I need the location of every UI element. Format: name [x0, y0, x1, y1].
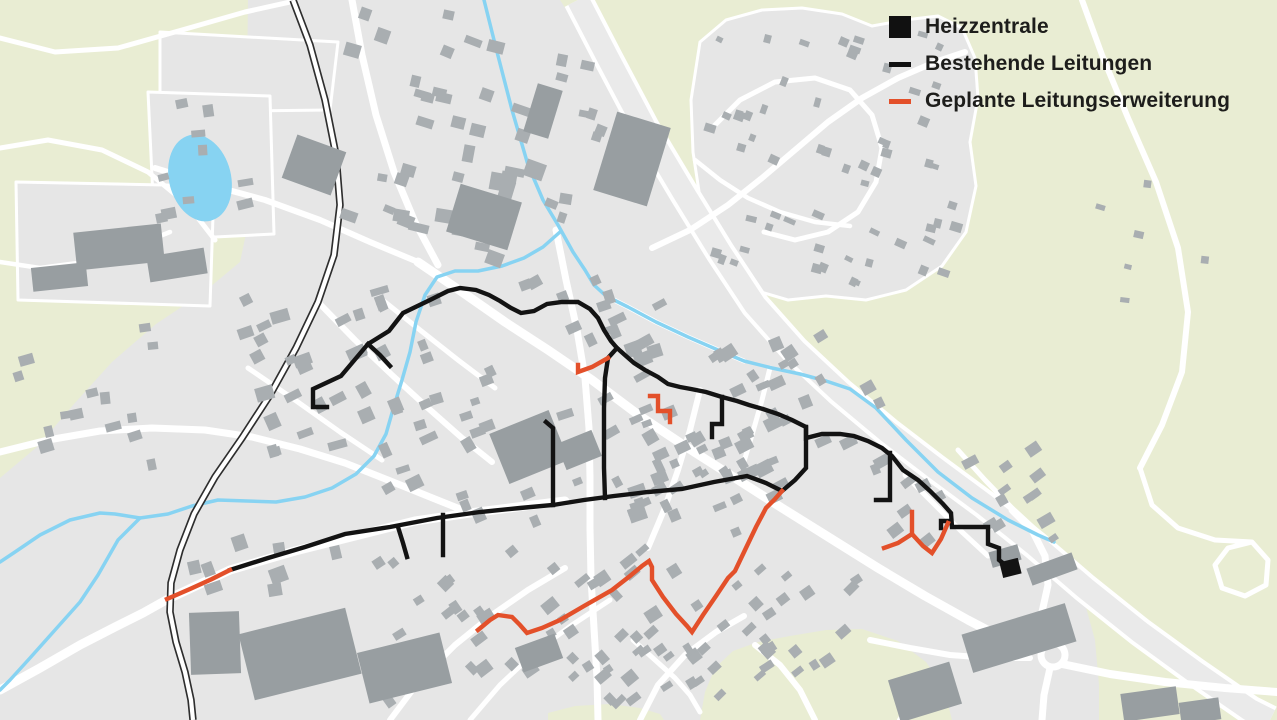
legend: Heizzentrale Bestehende Leitungen Geplan…: [889, 14, 1230, 114]
heizzentrale-square-icon: [889, 16, 911, 38]
map-canvas: Heizzentrale Bestehende Leitungen Geplan…: [0, 0, 1277, 720]
building: [377, 173, 388, 182]
building: [1201, 256, 1210, 264]
building: [1143, 180, 1151, 188]
building: [100, 392, 111, 405]
building: [267, 582, 283, 597]
building: [127, 413, 137, 424]
legend-label: Heizzentrale: [925, 15, 1049, 39]
building: [139, 323, 151, 333]
building: [191, 130, 205, 138]
legend-label: Bestehende Leitungen: [925, 52, 1152, 76]
building-large: [189, 611, 241, 675]
legend-label: Geplante Leitungserweiterung: [925, 89, 1230, 113]
building: [202, 104, 214, 118]
legend-item-geplante-leitungserweiterung: Geplante Leitungserweiterung: [889, 88, 1230, 114]
legend-item-bestehende-leitungen: Bestehende Leitungen: [889, 51, 1230, 77]
legend-item-heizzentrale: Heizzentrale: [889, 14, 1230, 40]
building: [392, 208, 410, 223]
building: [559, 193, 573, 205]
planned-line-swatch-icon: [889, 99, 911, 104]
existing-line-swatch-icon: [889, 62, 911, 67]
building: [198, 145, 208, 156]
building: [182, 196, 194, 204]
building: [147, 342, 158, 350]
